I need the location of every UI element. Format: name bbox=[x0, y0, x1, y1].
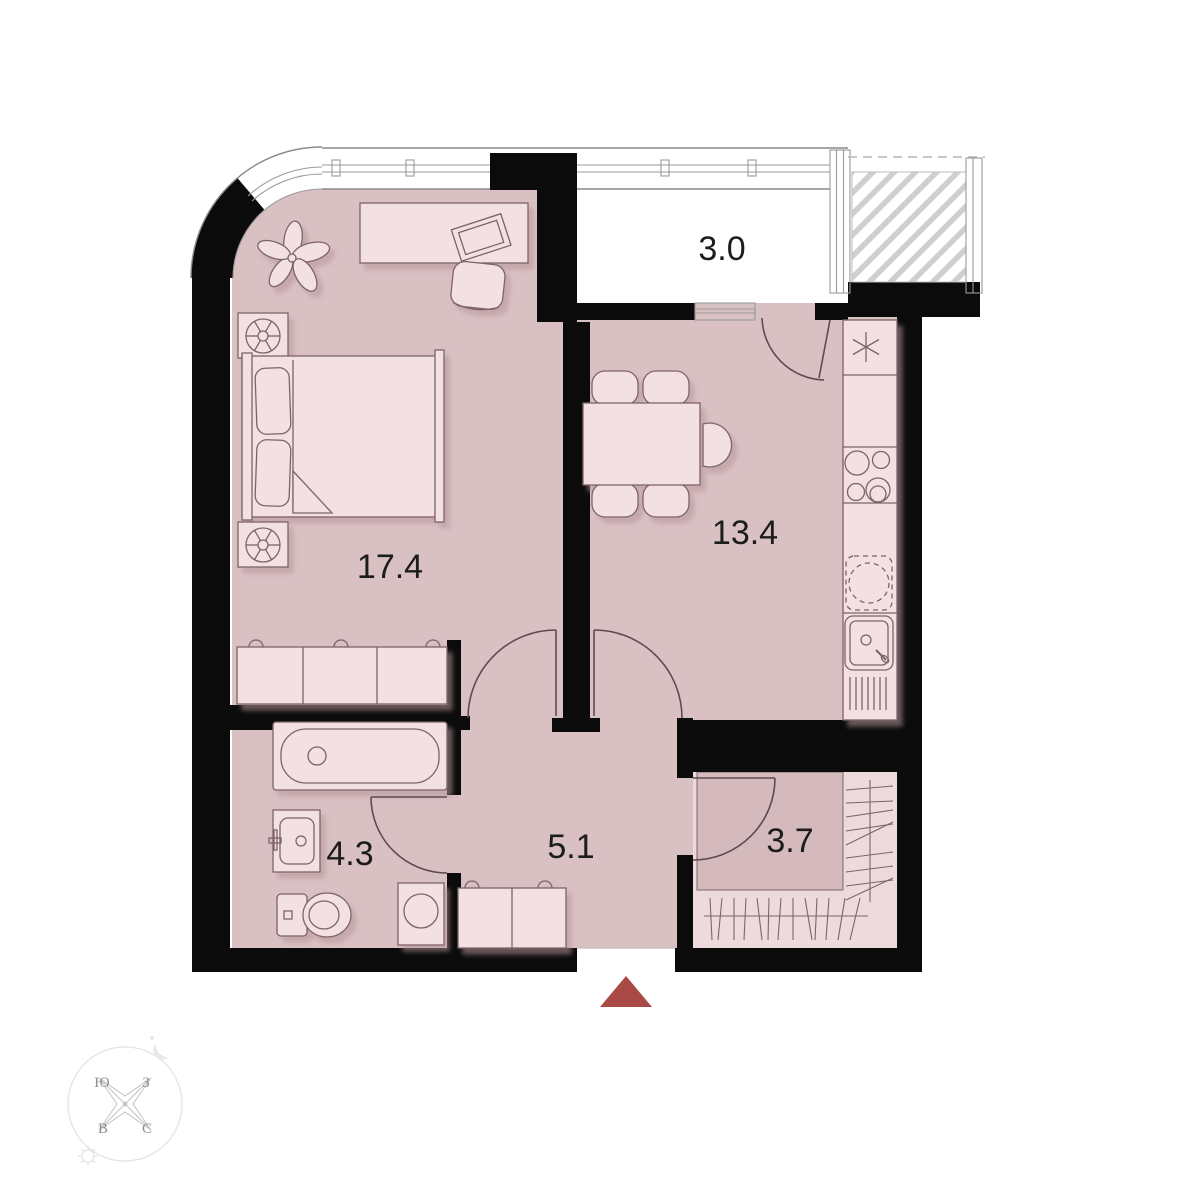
wall-balcony-kitchen-left bbox=[577, 303, 695, 320]
washing-machine-icon bbox=[398, 883, 444, 945]
compass-letter-south: Ю bbox=[94, 1075, 109, 1091]
wall-right bbox=[897, 317, 922, 972]
wall-neighbor-band bbox=[848, 282, 980, 317]
room-label-wardrobe: 3.7 bbox=[766, 822, 813, 860]
wall-hall-jamb-step bbox=[458, 716, 470, 730]
entrance-arrow-icon bbox=[600, 976, 652, 1007]
floor-plan-page: 17.4 13.4 3.0 5.1 4.3 3.7 Ю З В bbox=[0, 0, 1200, 1200]
chair-icon bbox=[592, 483, 638, 517]
wall-bedroom-kitchen bbox=[563, 322, 590, 718]
washbasin-icon bbox=[269, 810, 320, 872]
compass-letter-north: С bbox=[142, 1121, 152, 1137]
wall-bedroom-balcony bbox=[537, 190, 577, 322]
wall-bottom-right bbox=[675, 948, 922, 972]
floor-plan-drawing: 17.4 13.4 3.0 5.1 4.3 3.7 Ю З В bbox=[0, 0, 1200, 1200]
dresser-icon bbox=[237, 640, 447, 704]
wall-hall-wardrobe-upper bbox=[677, 718, 693, 778]
wall-door-flare bbox=[552, 718, 600, 732]
pillow-icon bbox=[255, 367, 291, 434]
wall-balcony-kitchen-right bbox=[815, 303, 848, 320]
bed-icon bbox=[242, 350, 444, 522]
chair-icon bbox=[643, 371, 689, 405]
bathtub-icon bbox=[273, 722, 447, 790]
toilet-icon bbox=[277, 893, 351, 937]
wall-bottom-left bbox=[192, 948, 577, 972]
compass-letter-east: В bbox=[98, 1121, 108, 1137]
compass-rose-icon: Ю З В С bbox=[68, 1036, 182, 1166]
desk-icon bbox=[360, 203, 528, 263]
dining-table-icon bbox=[583, 403, 700, 485]
wall-left bbox=[192, 258, 230, 972]
drainboard-lines bbox=[850, 677, 886, 710]
chair-icon bbox=[643, 483, 689, 517]
shoe-bench-icon bbox=[458, 881, 566, 948]
nightstand-lamp-icon bbox=[238, 522, 288, 567]
wall-window-pier bbox=[490, 153, 577, 190]
room-label-hallway: 5.1 bbox=[547, 828, 594, 866]
compass-letter-west: З bbox=[142, 1075, 150, 1091]
room-label-bathroom: 4.3 bbox=[326, 835, 373, 873]
wall-kitchen-bottom bbox=[693, 720, 922, 772]
desk-chair-icon bbox=[450, 260, 507, 312]
chair-icon bbox=[592, 371, 638, 405]
sun-icon bbox=[78, 1146, 98, 1166]
wardrobe-floor bbox=[693, 772, 897, 948]
moon-icon bbox=[150, 1036, 169, 1059]
wall-hall-wardrobe-lower bbox=[677, 855, 693, 948]
room-label-balcony: 3.0 bbox=[698, 230, 745, 268]
hatched-neighbor-balcony bbox=[848, 157, 985, 293]
room-label-bedroom: 17.4 bbox=[357, 548, 423, 586]
room-label-kitchen: 13.4 bbox=[712, 514, 778, 552]
pillow-icon bbox=[255, 439, 291, 506]
wall-bath-hall-upper bbox=[447, 730, 461, 795]
nightstand-lamp-icon bbox=[238, 313, 288, 358]
kitchen-counter-icon bbox=[843, 320, 897, 720]
